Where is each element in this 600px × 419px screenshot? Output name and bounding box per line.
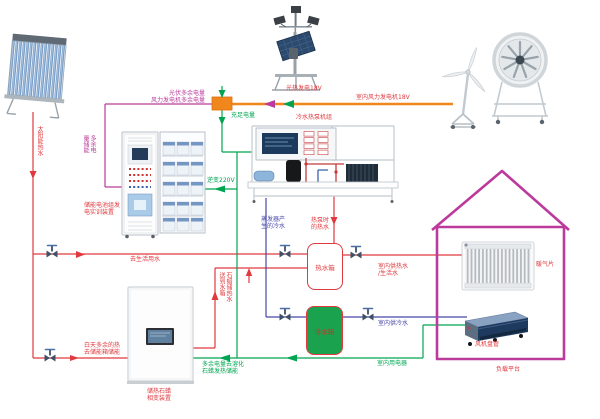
battery-storage-cabinet xyxy=(122,132,158,238)
hot-water-tank: 热水箱 xyxy=(307,243,343,290)
pv-tracker xyxy=(272,6,320,90)
indoor-appliances-label: 室内用电器 xyxy=(377,360,407,367)
battery-rack-cabinet xyxy=(160,132,205,233)
day-excess-heat-label: 白天多余的热去储能箱储能 xyxy=(84,342,123,356)
valve-icon xyxy=(363,309,374,321)
sufficient-power-label: 充足电量 xyxy=(231,112,255,119)
valve-icon xyxy=(280,309,291,321)
wind-generation-label: 室内风力发电机18V xyxy=(356,94,410,101)
cold-water-tank: 冷水箱 xyxy=(306,306,343,355)
pv-wind-excess-label: 光伏多余电量 风力发电机多余电量 xyxy=(140,90,205,104)
indoor-hot-water-label: 室内供热水 /生活水 xyxy=(378,263,408,277)
to-domestic-label: 去生活用水 xyxy=(130,256,160,263)
pv-generation-label: 光热发电18V xyxy=(286,85,322,92)
paraffin-phase-change-cabinet xyxy=(127,287,194,384)
radiator xyxy=(462,242,534,290)
power-junction-box xyxy=(212,97,232,110)
load-platform-label: 负载平台 xyxy=(496,366,520,373)
paraffin-device-label: 储热石蜡相变装置 xyxy=(147,388,173,402)
evaporator-cold-label: 蒸发器产生的冷水 xyxy=(261,216,288,230)
heat-pump-bench xyxy=(248,126,398,203)
wind-turbine-and-fan xyxy=(441,34,548,129)
battery-device-label: 储能电池组发电实训装置 xyxy=(84,202,123,216)
hot-water-tank-label: 热水箱 xyxy=(315,262,335,272)
cold-water-tank-label: 冷水箱 xyxy=(315,326,335,336)
excess-melt-label: 多余电量去溶化石蜡发热储能 xyxy=(202,361,247,375)
radiator-label: 暖气片 xyxy=(536,261,554,268)
excess-storage-label: 多余电量储能 xyxy=(80,135,96,157)
valve-icon xyxy=(47,246,58,258)
fan-coil-label: 风机盘管 xyxy=(475,341,499,348)
inverter-label: 逆变220V xyxy=(207,177,235,184)
valve-icon xyxy=(45,350,56,362)
diagram-canvas: 热水箱 冷水箱 太阳能热水 多余电量储能 光伏多余电量 风力发电机多余电量 储能… xyxy=(0,0,600,419)
heat-pump-hot-label: 热泵时的热水 xyxy=(311,217,331,231)
solar-collector xyxy=(3,33,70,118)
valve-icon xyxy=(351,247,362,259)
indoor-cold-water-label: 室内供冷水 xyxy=(378,320,408,327)
solar-hot-water-label: 太阳能热水 xyxy=(36,126,43,162)
valve-icon xyxy=(280,246,291,258)
heat-pump-unit-label: 冷水热泵机组 xyxy=(296,114,332,121)
paraffin-to-tank-label: 石蜡储热水送到水箱 xyxy=(216,272,232,306)
